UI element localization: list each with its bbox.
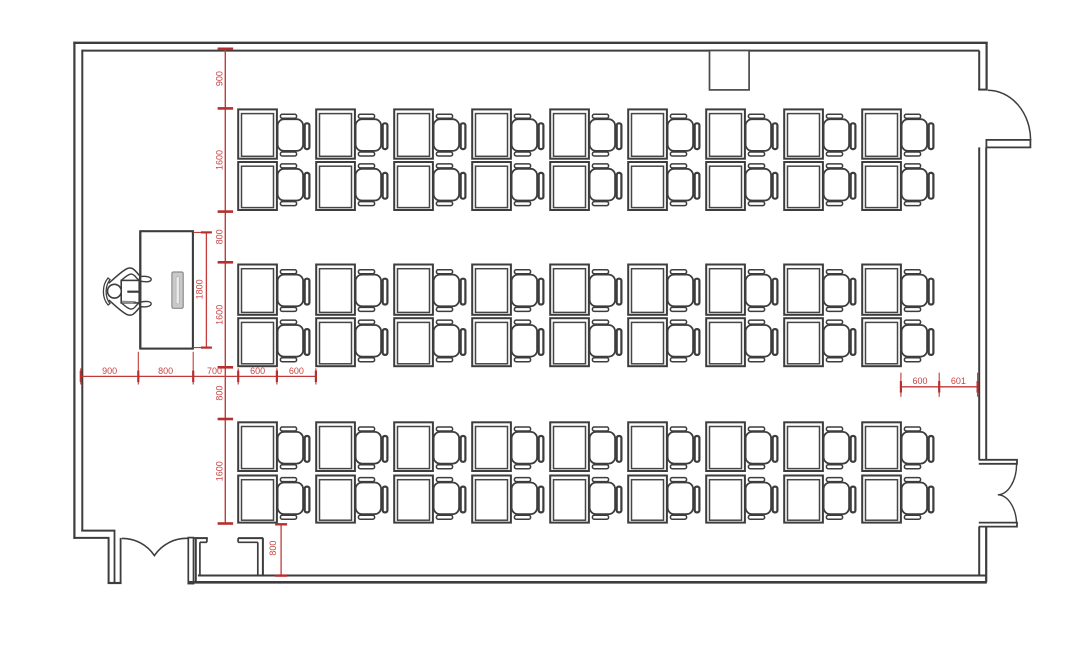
svg-text:1600: 1600 (214, 461, 224, 481)
svg-text:600: 600 (250, 366, 265, 376)
svg-text:800: 800 (214, 229, 224, 244)
svg-text:800: 800 (268, 541, 278, 556)
svg-text:600: 600 (912, 376, 927, 386)
svg-text:1600: 1600 (214, 305, 224, 325)
svg-text:1800: 1800 (195, 279, 205, 299)
svg-text:600: 600 (289, 366, 304, 376)
svg-text:800: 800 (158, 366, 173, 376)
svg-text:900: 900 (102, 366, 117, 376)
svg-text:900: 900 (214, 71, 224, 86)
svg-text:800: 800 (214, 386, 224, 401)
svg-text:601: 601 (951, 376, 966, 386)
svg-text:700: 700 (207, 366, 222, 376)
svg-text:1600: 1600 (214, 150, 224, 170)
